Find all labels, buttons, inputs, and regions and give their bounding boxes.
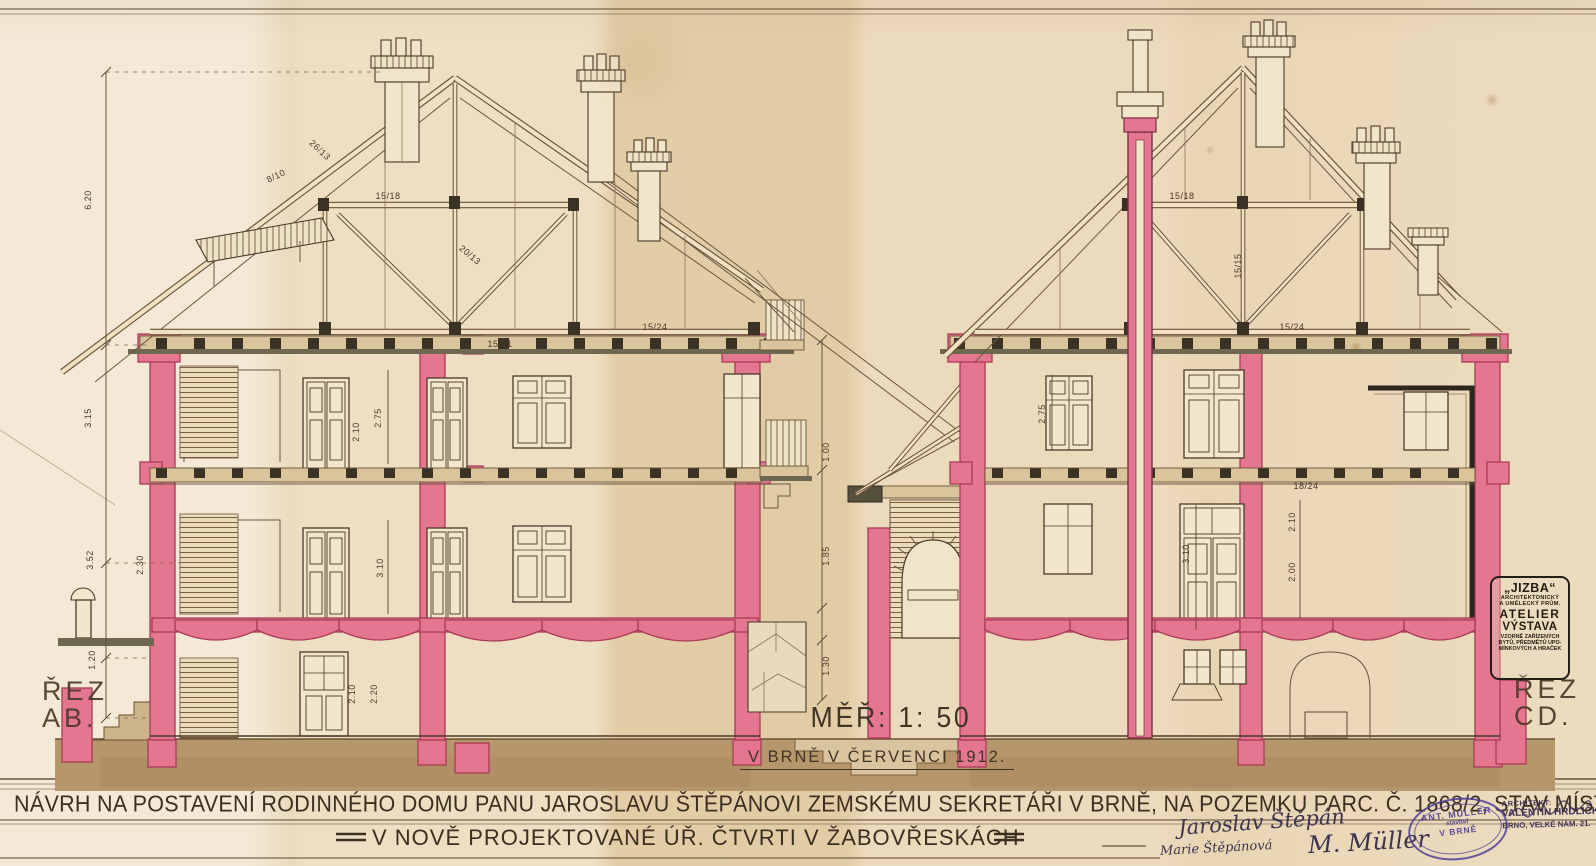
dim-label: 2.75 [1037,404,1047,424]
dim-label: 2.10 [1287,512,1297,532]
window-2f-r3 [1404,392,1448,450]
jizba-line: MÍNKOVÝCH A HRAČEK [1492,646,1568,652]
dim-label: 6.20 [83,190,93,210]
dim-label: 3.10 [1181,544,1191,564]
jizba-line: VZORNĚ ZAŘÍZENÝCH [1492,634,1568,640]
section-drawing [0,0,1596,866]
window-2f-r2 [1184,370,1244,458]
dim-label: 18/24 [1293,481,1318,491]
door-2f-left [303,378,349,474]
window-2f-r1 [1046,376,1092,450]
dim-label: 2.10 [347,684,357,704]
drawing-sheet: NÁVRH NA POSTAVENÍ RODINNÉHO DOMU PANU J… [0,0,1596,866]
dim-label: 1.30 [821,656,831,676]
door-2f-mid [427,378,467,474]
chimney-b [577,54,625,182]
balcony [760,300,812,508]
architect-block: ARCHITEKT: VALENTIN HRDLIČKA, BRNO, VELK… [1502,797,1596,831]
jizba-line: VÝSTAVA [1492,621,1568,634]
jizba-line: „JIZBA“ [1492,581,1568,595]
place-date-label: V BRNĚ V ČERVENCI 1912. [740,748,1014,770]
section-label-ab-line2: AB. [42,705,132,732]
dim-label: 15/21 [487,339,512,349]
title-line2: V NOVĚ PROJEKTOVANÉ ÚŘ. ČTVRTI V ŽABOVŘE… [372,825,1020,851]
dim-label: 15/15 [1233,253,1243,278]
dim-label: 15/18 [1169,191,1194,201]
dim-label: 1.85 [821,546,831,566]
dim-label: 3.10 [375,558,385,578]
dim-label: 2.10 [351,422,361,442]
dim-label: 15/24 [1279,322,1304,332]
basement-window-1 [1172,650,1222,700]
dim-label: 2.75 [373,408,383,428]
section-label-ab: ŘEZ AB. [42,678,132,732]
jizba-stamp: „JIZBA“ ARCHITEKTONICKÝ A UMĚLECKÝ PRŮM.… [1490,576,1570,680]
section-label-cd-line1: ŘEZ [1514,676,1596,703]
scale-label: MĚŘ: 1: 50 [804,702,979,735]
dim-label: 2.30 [135,555,145,575]
basement-window-2 [1220,650,1246,684]
balcony-door-2f [724,374,760,468]
dim-label: 2.20 [369,684,379,704]
window-1f [513,526,571,602]
dim-label: 2.00 [1287,562,1297,582]
section-label-cd-line2: CD. [1514,703,1596,730]
window-2f [513,376,571,448]
door-1f-left [303,528,349,626]
section-label-cd: ŘEZ CD. [1514,676,1596,730]
jizba-line: BYTŮ, PŘEDMĚTŮ UPO- [1492,640,1568,646]
dim-label: 3.52 [85,550,95,570]
window-1f-r1 [1044,504,1092,574]
title-line1: NÁVRH NA POSTAVENÍ RODINNÉHO DOMU PANU J… [14,791,1592,818]
section-label-ab-line1: ŘEZ [42,678,132,705]
section-cd [940,20,1512,740]
section-ab [58,38,960,740]
dim-label: 1.20 [87,650,97,670]
door-1f-mid [427,528,467,626]
dim-label: 15/24 [642,322,667,332]
jizba-line: ATELIER [1492,608,1568,621]
roof-truss-cd [945,68,1502,362]
basement-arch [1290,652,1370,738]
dim-label: 15/18 [375,191,400,201]
dim-label: 3.15 [83,408,93,428]
dormer [196,218,334,286]
dim-label: 1.00 [821,442,831,462]
basement-door [300,652,348,736]
tall-door-1f [1180,504,1244,632]
